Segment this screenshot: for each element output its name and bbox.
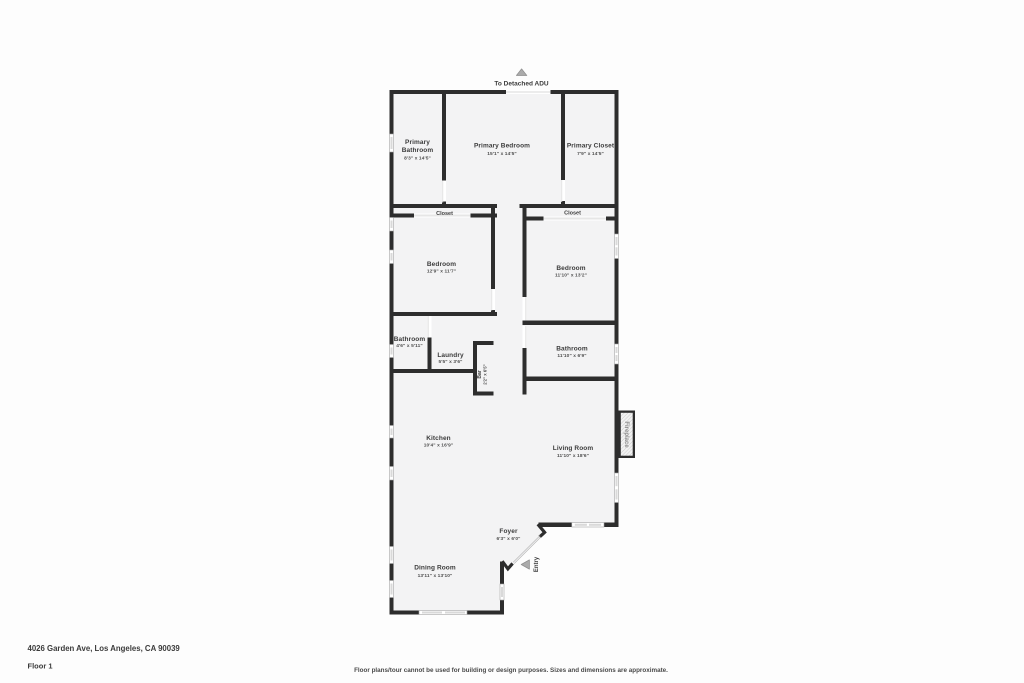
svg-text:To Detached ADU: To Detached ADU	[494, 80, 548, 87]
svg-text:Floor 1: Floor 1	[28, 662, 53, 671]
svg-text:6'3" x 6'0": 6'3" x 6'0"	[497, 536, 521, 542]
svg-text:Entry: Entry	[534, 556, 540, 572]
svg-text:11'10" x 13'2": 11'10" x 13'2"	[555, 273, 587, 279]
svg-text:15'1" x 14'5": 15'1" x 14'5"	[487, 151, 516, 157]
svg-text:11'10" x 18'6": 11'10" x 18'6"	[557, 453, 589, 459]
svg-text:7'9" x 14'5": 7'9" x 14'5"	[577, 151, 604, 157]
svg-text:4'6" x 5'11": 4'6" x 5'11"	[396, 343, 422, 349]
svg-text:Dining Room: Dining Room	[414, 565, 456, 572]
svg-text:Primary Closet: Primary Closet	[567, 143, 615, 150]
svg-text:11'10" x 6'9": 11'10" x 6'9"	[557, 353, 586, 359]
svg-text:Bathroom: Bathroom	[394, 336, 426, 343]
svg-text:Primary: Primary	[405, 139, 430, 146]
svg-text:5'5" x 3'6": 5'5" x 3'6"	[439, 359, 463, 365]
svg-text:Floor plans/tour cannot be use: Floor plans/tour cannot be used for buil…	[354, 667, 668, 674]
svg-text:10'4" x 16'9": 10'4" x 16'9"	[424, 443, 453, 449]
svg-text:4026 Garden Ave, Los Angeles,: 4026 Garden Ave, Los Angeles, CA 90039	[28, 644, 181, 653]
svg-text:Foyer: Foyer	[499, 528, 518, 535]
svg-text:12'9" x 11'7": 12'9" x 11'7"	[427, 269, 456, 275]
svg-text:Laundry: Laundry	[437, 352, 464, 359]
svg-text:2'2" x 6'5": 2'2" x 6'5"	[483, 364, 488, 384]
svg-text:Bathroom: Bathroom	[402, 147, 434, 154]
svg-text:Closet: Closet	[564, 211, 581, 217]
svg-text:Fireplace: Fireplace	[623, 421, 629, 448]
svg-text:13'11" x 13'10": 13'11" x 13'10"	[418, 573, 453, 579]
svg-text:Primary Bedroom: Primary Bedroom	[474, 143, 530, 150]
svg-text:8'3" x 14'5": 8'3" x 14'5"	[404, 156, 431, 162]
svg-text:Bathroom: Bathroom	[556, 346, 588, 353]
svg-text:Bedroom: Bedroom	[556, 265, 585, 272]
svg-text:Closet: Closet	[436, 211, 453, 217]
svg-text:Living Room: Living Room	[553, 445, 594, 452]
svg-text:Kitchen: Kitchen	[426, 435, 451, 442]
svg-text:Bedroom: Bedroom	[427, 261, 456, 268]
